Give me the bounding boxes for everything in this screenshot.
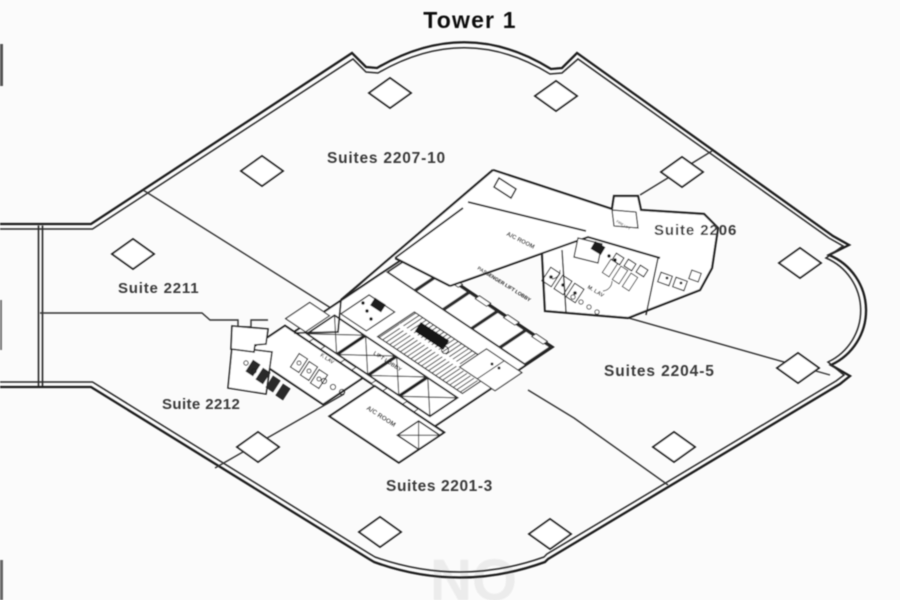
svg-text:Suites 2207-10: Suites 2207-10 [327, 150, 446, 167]
svg-text:Suites 2201-3: Suites 2201-3 [386, 478, 493, 495]
svg-text:Tower 1: Tower 1 [423, 7, 517, 33]
svg-text:Suite 2212: Suite 2212 [162, 396, 240, 413]
svg-text:Suite 2206: Suite 2206 [654, 222, 737, 239]
svg-text:Suite 2211: Suite 2211 [118, 280, 199, 297]
svg-text:Suites 2204-5: Suites 2204-5 [604, 363, 715, 380]
svg-text:NO: NO [430, 548, 517, 600]
